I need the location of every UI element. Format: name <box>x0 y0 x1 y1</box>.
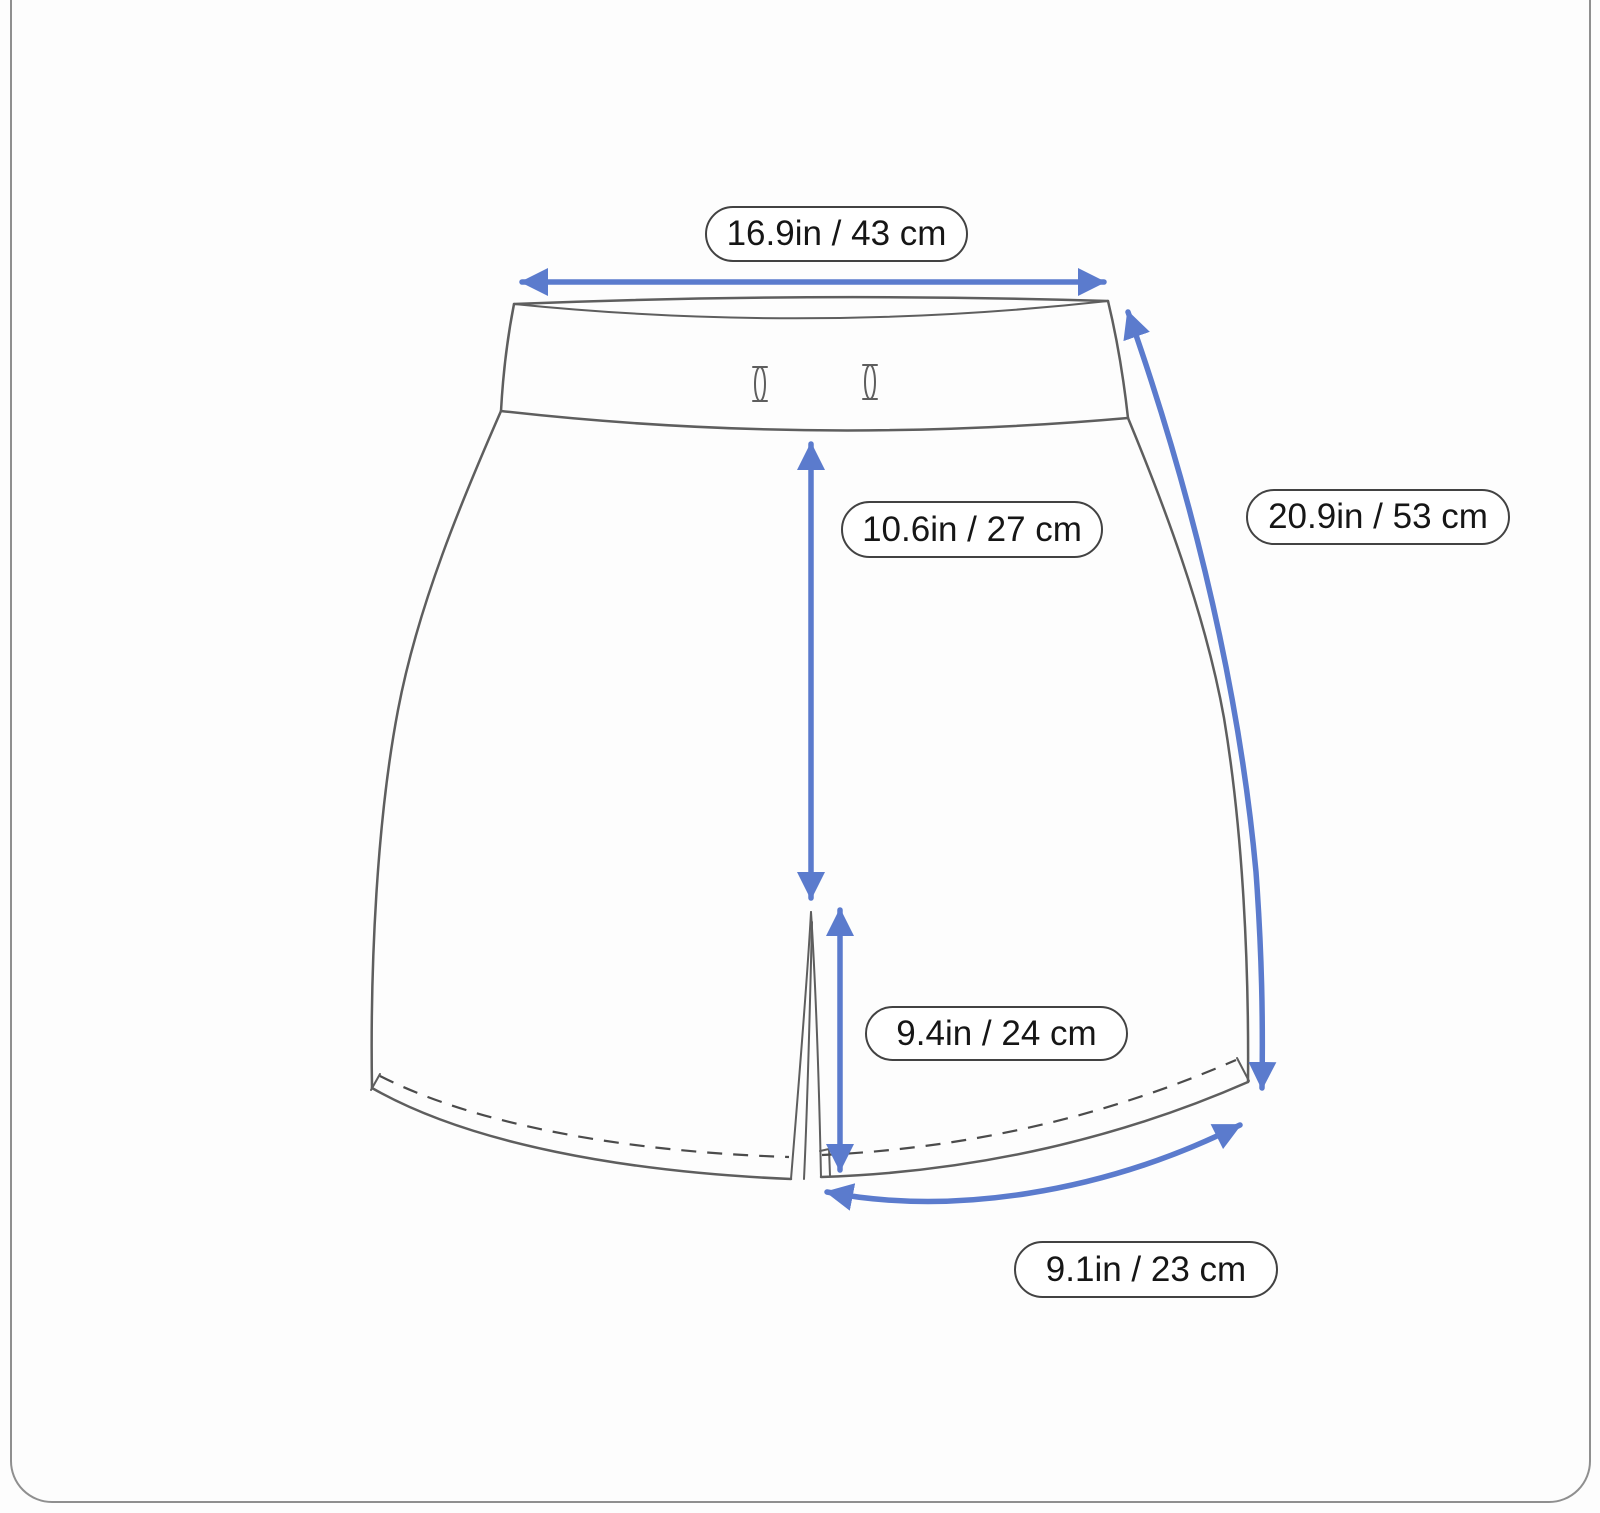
slit-right-edge <box>811 912 821 1177</box>
waistband-top-line <box>514 297 1108 304</box>
right-hem-line <box>821 1082 1248 1177</box>
right-side-seam <box>1128 418 1248 1082</box>
waistband-inner-curve <box>514 301 1108 318</box>
side-length-label: 20.9in / 53 cm <box>1246 489 1510 545</box>
waistband-bottom-line <box>501 411 1128 430</box>
slit-height-label: 9.4in / 24 cm <box>865 1006 1128 1061</box>
side-length-arrow <box>1128 312 1262 1088</box>
waist-width-label: 16.9in / 43 cm <box>705 206 968 262</box>
left-side-seam <box>372 411 501 1088</box>
waistband-right-edge <box>1108 301 1128 418</box>
drawstring-eyelet-right <box>863 365 877 399</box>
shorts-size-diagram: 16.9in / 43 cm 20.9in / 53 cm 10.6in / 2… <box>0 0 1600 1513</box>
right-hem-stitch-dashed <box>822 1060 1236 1155</box>
left-hem-stitch-dashed <box>380 1076 789 1157</box>
leg-opening-arrow <box>827 1125 1240 1201</box>
front-rise-label: 10.6in / 27 cm <box>841 501 1103 558</box>
waistband-left-edge <box>501 304 514 411</box>
drawstring-eyelet-left <box>753 367 767 401</box>
leg-opening-label: 9.1in / 23 cm <box>1014 1241 1278 1298</box>
left-hem-line <box>372 1088 791 1179</box>
